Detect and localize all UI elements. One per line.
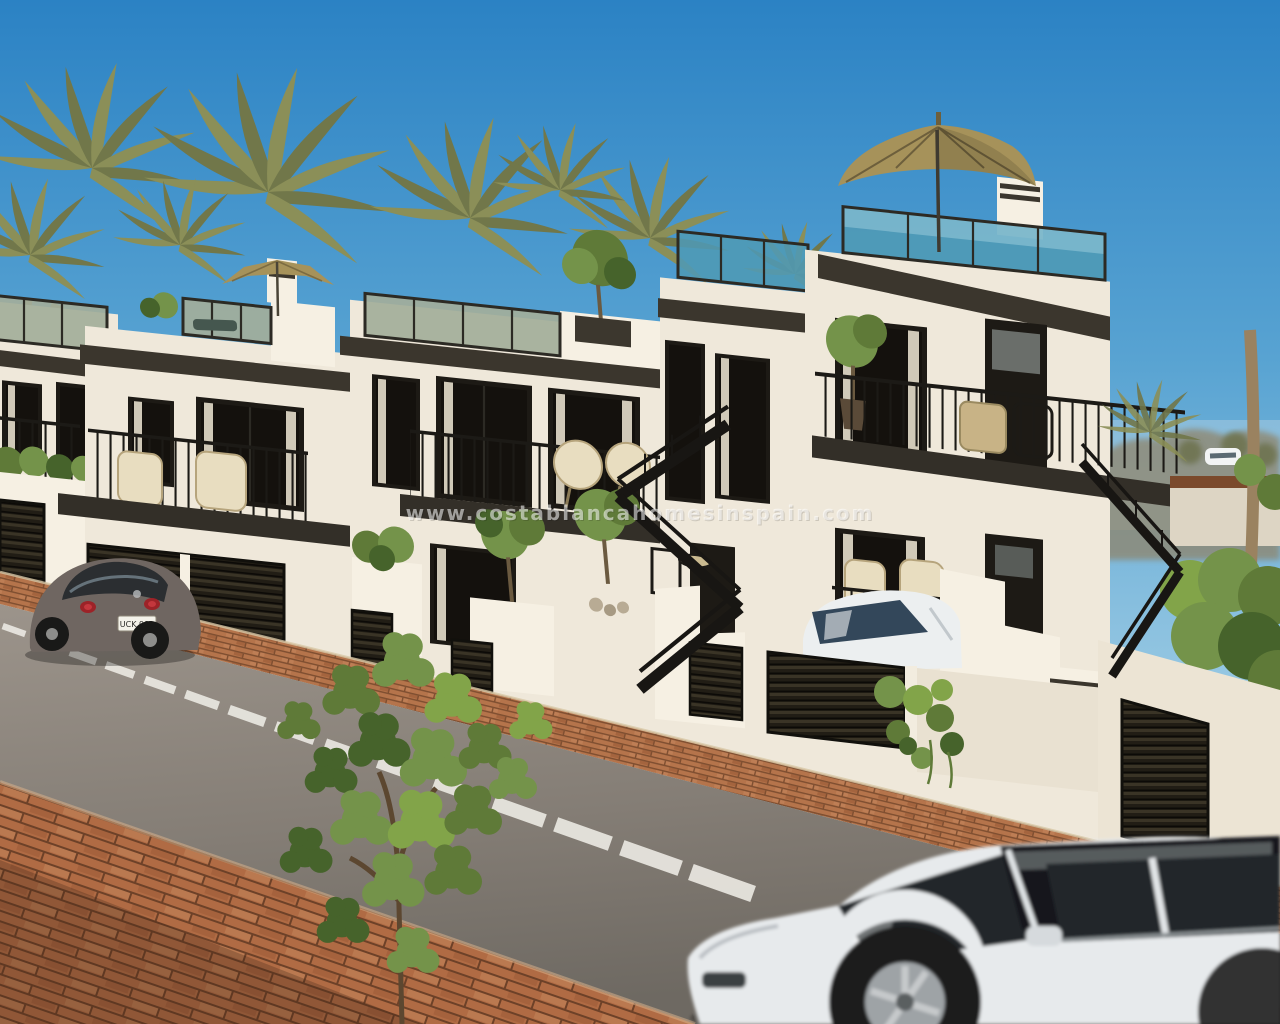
suv-mirror	[1026, 926, 1062, 946]
garage-vent-grille	[690, 643, 742, 720]
right-palm-trunk	[1250, 330, 1254, 565]
watermark-text: www.costablancahomesinspain.com www.cost…	[406, 501, 876, 526]
render-canvas: UCK 982 www.costablancahomesinspain.com	[0, 0, 1280, 1024]
sun-lounger	[193, 319, 238, 332]
garage-door	[1122, 700, 1208, 860]
property-render-image: UCK 982 www.costablancahomesinspain.com	[0, 0, 1280, 1024]
watermark-url: www.costablancahomesinspain.com	[406, 501, 875, 525]
